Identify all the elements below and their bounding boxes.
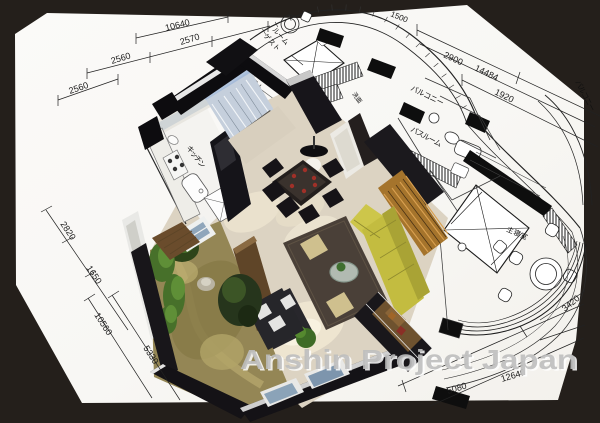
svg-text:Anshin Project Japan: Anshin Project Japan: [240, 344, 577, 375]
